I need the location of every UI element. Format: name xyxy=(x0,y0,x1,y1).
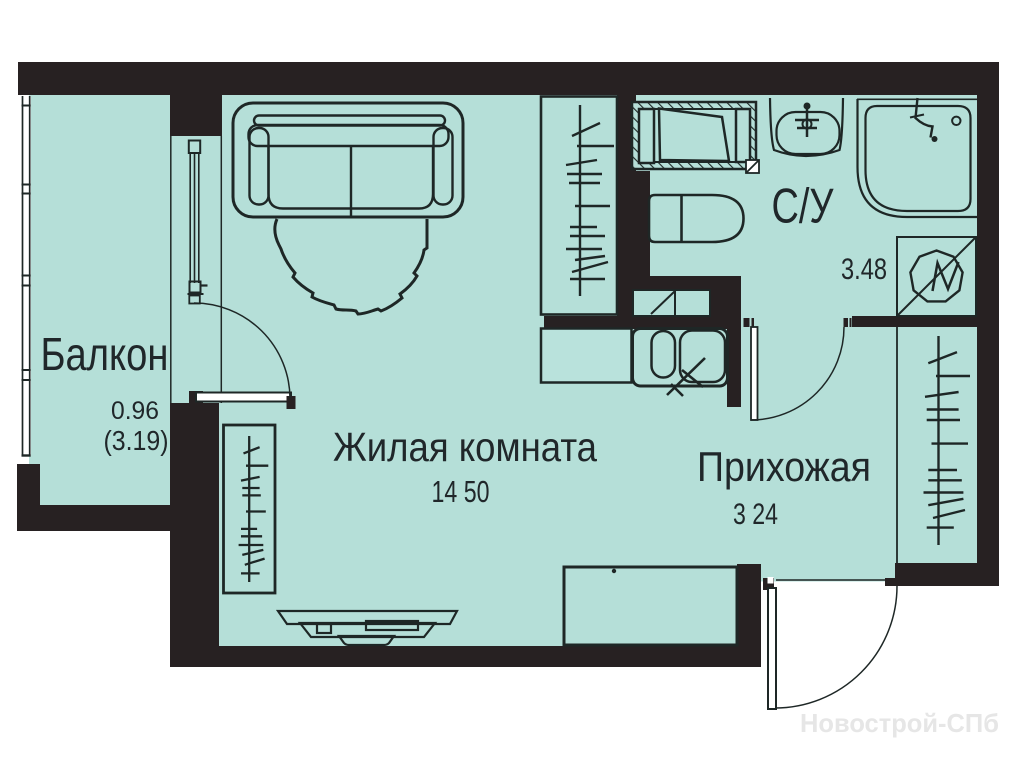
svg-text:3 24: 3 24 xyxy=(733,498,778,531)
svg-text:Балкон: Балкон xyxy=(41,328,169,380)
svg-text:С/У: С/У xyxy=(772,180,835,234)
svg-text:14 50: 14 50 xyxy=(432,474,490,509)
svg-text:Жилая комната: Жилая комната xyxy=(333,424,597,470)
svg-text:(3.19): (3.19) xyxy=(104,425,169,456)
svg-text:Новострой-СПб: Новострой-СПб xyxy=(800,708,999,738)
svg-text:Прихожая: Прихожая xyxy=(697,443,871,490)
svg-text:0.96: 0.96 xyxy=(111,397,159,425)
svg-text:3.48: 3.48 xyxy=(841,253,887,286)
